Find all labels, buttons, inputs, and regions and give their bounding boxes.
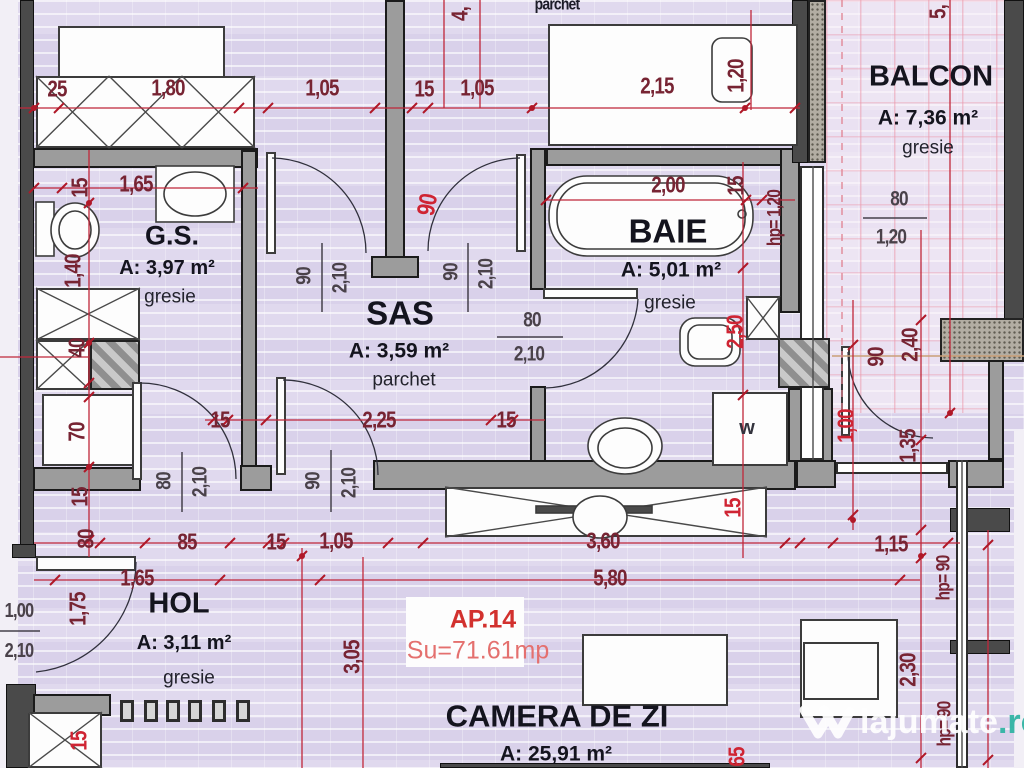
room-area-gs: A: 3,97 m² xyxy=(119,258,215,278)
room-name-camera: CAMERA DE ZI xyxy=(446,701,669,732)
watermark-tld: .ro xyxy=(998,703,1024,742)
apartment-id: AP.14 xyxy=(450,608,516,633)
room-name-baie: BAIE xyxy=(629,215,708,248)
room-floor-sas: parchet xyxy=(372,371,435,390)
room-name-gs: G.S. xyxy=(145,223,199,250)
room-name-sas: SAS xyxy=(366,297,434,330)
room-area-hol: A: 3,11 m² xyxy=(137,633,231,653)
apartment-area: Su=71.61mp xyxy=(407,639,549,664)
room-floor-hol: gresie xyxy=(163,669,215,688)
room-area-sas: A: 3,59 m² xyxy=(349,341,449,362)
room-area-camera: A: 25,91 m² xyxy=(500,744,612,765)
room-floor-balcon: gresie xyxy=(902,139,954,158)
room-floor-gs: gresie xyxy=(144,288,196,307)
fraction-dividers xyxy=(0,218,927,631)
watermark-brand: lajumate xyxy=(860,703,998,742)
floor-plan: G.S. A: 3,97 m² gresie SAS A: 3,59 m² pa… xyxy=(0,0,1024,768)
room-area-baie: A: 5,01 m² xyxy=(621,260,721,281)
watermark: lajumate.ro xyxy=(798,700,1024,744)
room-name-balcon: BALCON xyxy=(869,63,993,92)
watermark-logo-icon xyxy=(798,700,856,744)
room-area-balcon: A: 7,36 m² xyxy=(878,108,978,129)
room-floor-baie: gresie xyxy=(644,294,696,313)
room-name-hol: HOL xyxy=(148,590,209,619)
washer-label: w xyxy=(739,418,755,438)
